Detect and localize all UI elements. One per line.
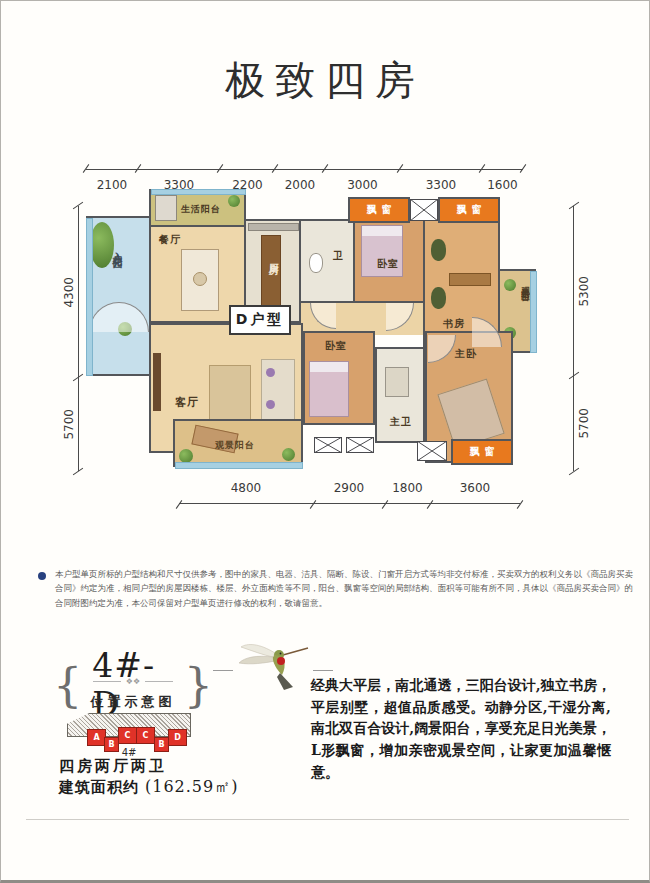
- label-bay-window: 飘窗: [362, 203, 397, 217]
- label-view-balcony: 观景阳台: [215, 439, 255, 452]
- dim-bottom-2: 2900: [313, 481, 385, 504]
- page-title: 极致四房: [1, 53, 649, 108]
- window-glazing: [86, 218, 93, 376]
- furniture-table-center: [193, 272, 207, 286]
- furniture-tv-cabinet: [153, 353, 161, 411]
- hummingbird-icon: [239, 641, 309, 703]
- dim-left-2: 5700: [59, 378, 79, 471]
- ornament-line: [145, 681, 173, 682]
- dimension-chain-bottom: 4800 2900 1800 3600: [179, 481, 520, 504]
- label-bedroom-north: 卧室: [377, 257, 399, 271]
- dim-bottom-1: 4800: [179, 481, 313, 504]
- label-entry-garden: 入户花园: [110, 244, 124, 252]
- dimension-chain-right: 5300 5700: [573, 206, 593, 471]
- furniture-desk: [449, 273, 491, 286]
- label-study: 书房: [443, 317, 465, 331]
- area-line: 建筑面积约 (162.59㎡): [59, 777, 238, 798]
- plant-decor: [282, 448, 295, 461]
- unit-type-box: D户型: [229, 305, 291, 335]
- furniture-rug: [209, 365, 251, 423]
- furniture-cushion: [266, 400, 275, 409]
- dimension-chain-left: 4300 5700: [59, 206, 79, 471]
- dim-left-1: 4300: [59, 206, 79, 378]
- area-value: (162.59㎡): [145, 777, 238, 798]
- disclaimer-text: 本户型单页所标的户型结构和尺寸仅供参考，图中的家具、电器、洁具、隔断、陈设、门窗…: [55, 567, 633, 610]
- dim-bottom-4: 3600: [430, 481, 520, 504]
- label-dining: 餐厅: [159, 233, 181, 247]
- block-d: D: [168, 729, 187, 746]
- ornament-divider: ❖❖: [93, 677, 173, 686]
- dim-right-2: 5700: [573, 376, 593, 471]
- window-glazing: [175, 462, 303, 469]
- window-glazing: [530, 271, 537, 353]
- area-label: 建筑面积约: [59, 778, 139, 797]
- window-glazing: [151, 189, 246, 195]
- room-entry-garden: 入户花园: [86, 216, 151, 376]
- label-master-bath: 主卫: [390, 415, 412, 429]
- marketing-description: 经典大平层，南北通透，三阳台设计,独立书房，平层别墅，超值品质感受。动静分区,干…: [311, 675, 611, 783]
- dim-right-1: 5300: [573, 206, 593, 376]
- furniture-shower: [385, 367, 409, 397]
- label-bath: 卫: [333, 249, 344, 263]
- furniture-toilet: [309, 253, 323, 273]
- footer-separator: [26, 819, 629, 820]
- bay-window-north-1: 飘窗: [348, 197, 410, 223]
- room-bath: 卫: [299, 219, 355, 303]
- label-kitchen: 厨房: [266, 255, 280, 259]
- bay-window-south: 飘窗: [451, 439, 513, 465]
- window-icon: [346, 437, 374, 453]
- label-bedroom-south: 卧室: [325, 339, 347, 353]
- location-diagram: A B C C B D 4#: [67, 709, 191, 761]
- ornament-line: [93, 681, 121, 682]
- label-bay-window: 飘窗: [452, 203, 487, 217]
- room-master-bath: 主卫: [375, 347, 425, 443]
- furniture-kitchen-island: [261, 235, 281, 315]
- furniture-pillows: [310, 362, 348, 372]
- plant-decor: [504, 279, 516, 291]
- bay-window-north-2: 飘窗: [438, 197, 500, 223]
- room-view-balcony: 观景阳台: [173, 419, 303, 467]
- plant-decor: [179, 449, 193, 463]
- floor-plan: 入户花园 生活阳台 餐厅 厨房 卫: [86, 189, 536, 479]
- furniture-counter: [248, 223, 299, 231]
- label-living: 客厅: [175, 395, 199, 410]
- door-arc: [119, 302, 149, 332]
- furniture-laundry-rack: [155, 195, 177, 221]
- disclaimer-bullet: [38, 572, 46, 580]
- label-master-bedroom: 主卧: [455, 347, 477, 361]
- door-arc: [89, 302, 119, 332]
- unit-spec: 四房两厅两卫: [59, 757, 167, 776]
- ornament-dash-right: [313, 670, 333, 671]
- room-bedroom-north: 卧室: [353, 219, 425, 303]
- flyer-page: 极致四房 2100 3300 2200 2000 3000 3300 1600 …: [0, 0, 650, 883]
- furniture-dining-table: [181, 249, 219, 311]
- block-c1: C: [118, 727, 137, 744]
- block-c2: C: [136, 727, 155, 744]
- plant-decor: [228, 195, 240, 207]
- furniture-chair: [431, 239, 446, 261]
- furniture-cushion: [266, 368, 275, 377]
- ornament-dash-left: [213, 670, 233, 671]
- label-bay-window: 飘窗: [465, 445, 500, 459]
- window-icon: [314, 437, 342, 453]
- window-icon: [410, 199, 438, 221]
- ornament-diamonds: ❖❖: [126, 677, 140, 686]
- furniture-bed: [309, 361, 349, 417]
- label-service-balcony: 生活阳台: [181, 203, 221, 216]
- furniture-chair: [431, 287, 446, 309]
- dim-bottom-3: 1800: [385, 481, 430, 504]
- room-bedroom-south: 卧室: [303, 331, 375, 425]
- furniture-pillows: [362, 226, 402, 236]
- window-icon: [417, 441, 447, 461]
